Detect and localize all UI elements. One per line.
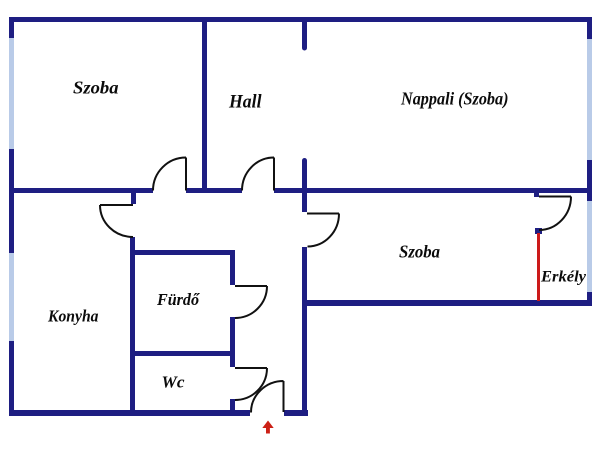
- svg-text:Erkély: Erkély: [540, 269, 587, 286]
- svg-text:Szoba: Szoba: [73, 78, 119, 98]
- svg-text:Konyha: Konyha: [47, 307, 99, 326]
- svg-text:Wc: Wc: [162, 373, 185, 392]
- svg-text:Hall: Hall: [228, 92, 262, 113]
- svg-text:Fürdő: Fürdő: [156, 290, 200, 309]
- svg-text:Nappali (Szoba): Nappali (Szoba): [400, 89, 508, 110]
- svg-text:Szoba: Szoba: [399, 242, 440, 262]
